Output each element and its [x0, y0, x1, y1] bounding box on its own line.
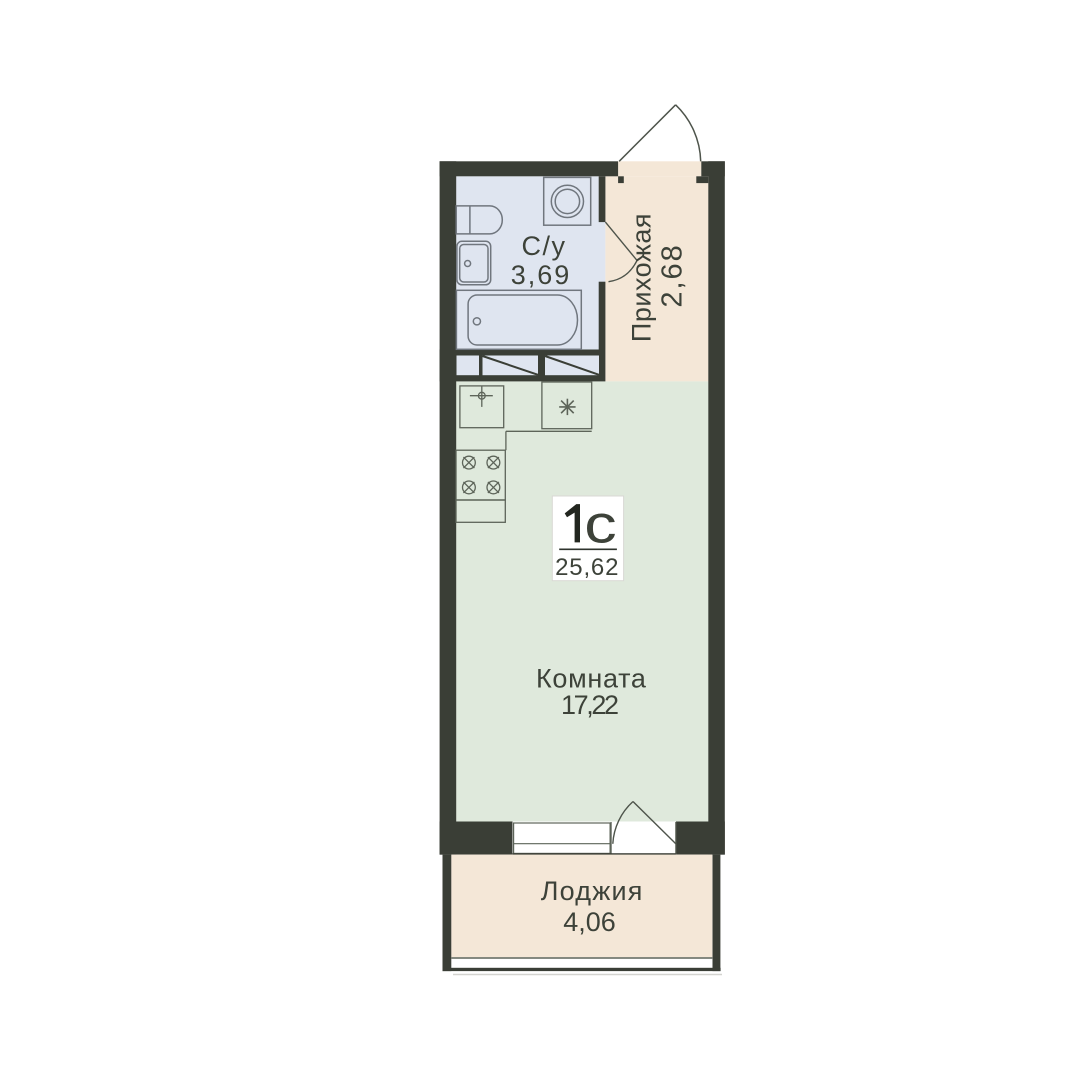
svg-text:Комната: Комната — [536, 664, 647, 694]
svg-text:С/у: С/у — [522, 231, 567, 261]
svg-text:Прихожая: Прихожая — [627, 213, 657, 342]
svg-text:25,62: 25,62 — [555, 554, 619, 581]
svg-text:с: с — [584, 494, 616, 555]
svg-text:Лоджия: Лоджия — [541, 876, 644, 906]
svg-text:3,69: 3,69 — [511, 260, 572, 290]
svg-text:2,68: 2,68 — [657, 243, 689, 307]
svg-text:4,06: 4,06 — [563, 907, 616, 937]
svg-text:17,22: 17,22 — [561, 690, 618, 720]
